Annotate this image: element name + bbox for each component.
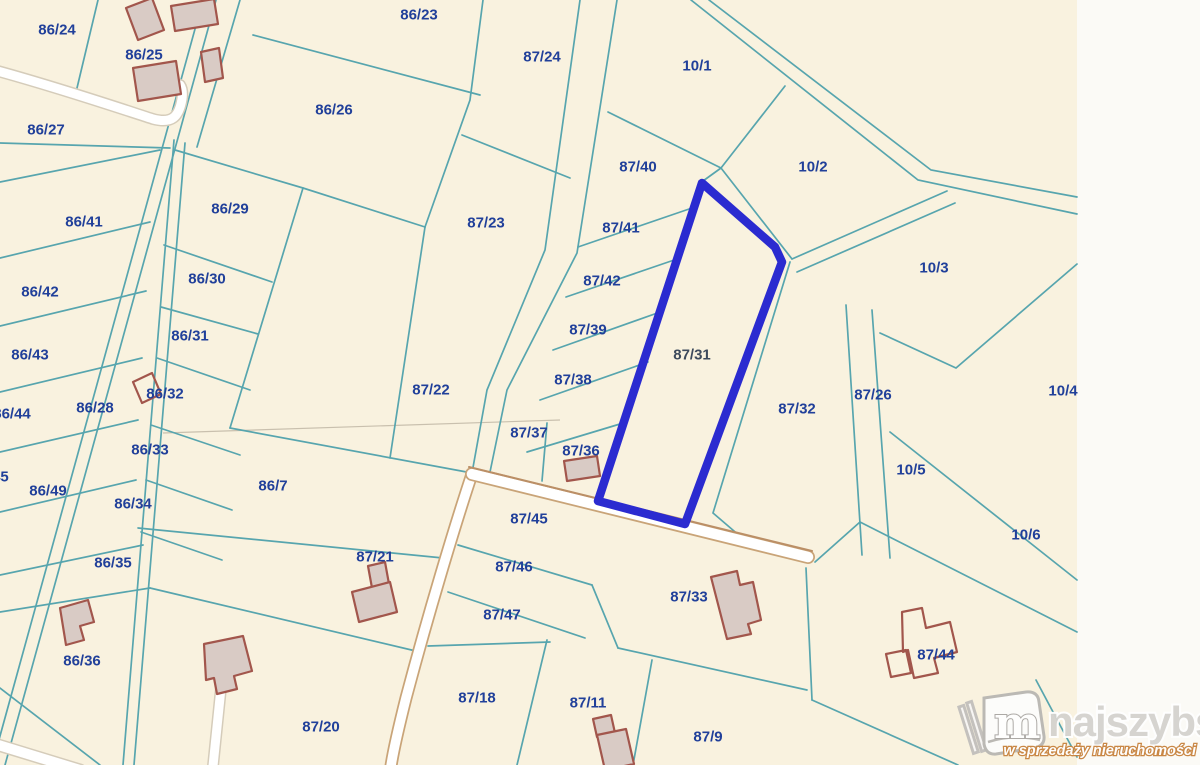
logo-letter-m: m [994,698,1041,749]
logo-brand-text: najszybsi [1048,698,1200,745]
brand-watermark: m najszybsi w sprzedaży nieruchomości [948,684,1200,765]
building [201,48,223,82]
map-viewport: 86/2486/2586/2387/2410/186/2686/2787/401… [0,0,1200,765]
logo-tagline-text: w sprzedaży nieruchomości [1003,743,1197,759]
building [133,61,181,101]
building [564,456,600,481]
map-edge-gutter [1077,0,1200,765]
map-canvas[interactable] [0,0,1200,765]
